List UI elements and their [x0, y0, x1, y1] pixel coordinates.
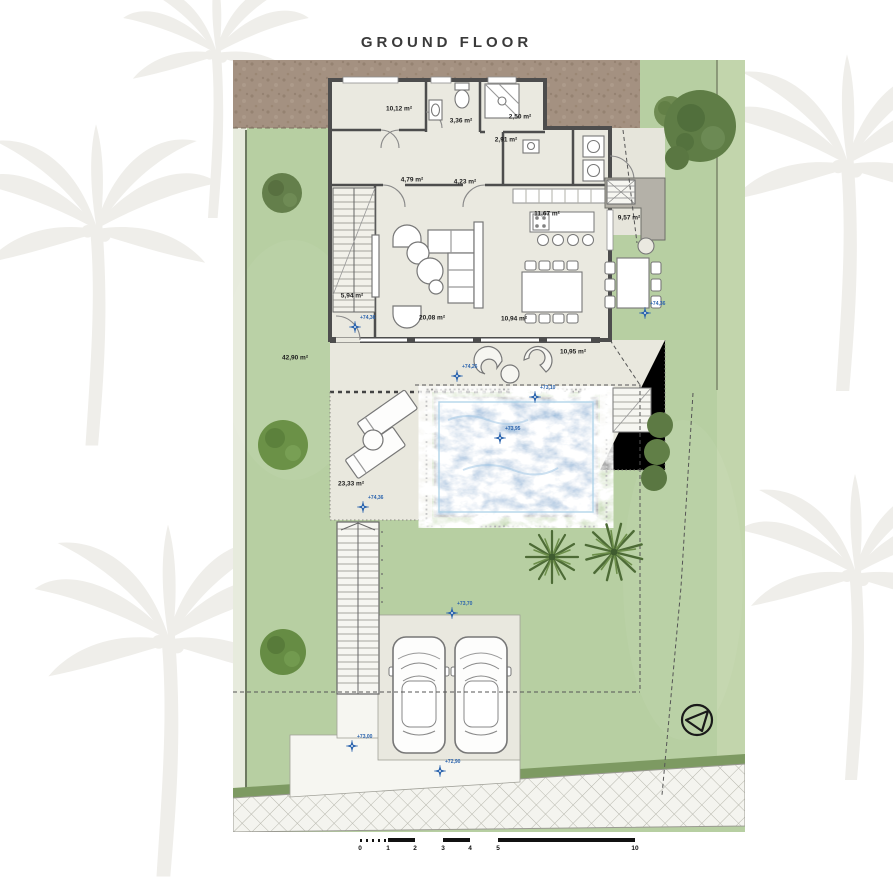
level-point-icon	[639, 307, 651, 319]
level-point-icon	[434, 765, 446, 777]
level-point-icon	[446, 607, 458, 619]
scale-tick-label: 0	[358, 845, 362, 852]
level-marker: +73,10	[529, 390, 541, 402]
tree	[258, 420, 308, 470]
scale-bar-segment	[498, 838, 635, 842]
scale-tick-label: 3	[441, 845, 445, 852]
level-marker: +72,90	[434, 764, 446, 776]
scale-tick-label: 1	[386, 845, 390, 852]
scale-tick-label: 10	[631, 845, 638, 852]
room-area-label: 10,94 m²	[501, 316, 527, 323]
level-marker: +74,36	[639, 306, 651, 318]
level-marker: +74,26	[451, 369, 463, 381]
floor-plan-page: GROUND FLOOR	[0, 0, 893, 896]
room-area-label: 4,79 m²	[401, 177, 423, 184]
tree	[260, 629, 306, 675]
scale-bar-dotted-segment	[360, 839, 388, 842]
room-area-label: 2,50 m²	[509, 114, 531, 121]
car-right	[451, 637, 511, 753]
level-point-icon	[494, 432, 506, 444]
level-marker: +73,00	[346, 739, 358, 751]
scale-tick-label: 4	[468, 845, 472, 852]
room-area-label: 10,12 m²	[386, 106, 412, 113]
car-left	[389, 637, 449, 753]
room-area-label: 42,90 m²	[282, 355, 308, 362]
page-title: GROUND FLOOR	[0, 34, 893, 51]
level-marker: +73,70	[446, 606, 458, 618]
level-point-icon	[451, 370, 463, 382]
room-area-label: 9,57 m²	[618, 215, 640, 222]
room-area-label: 3,36 m²	[450, 118, 472, 125]
level-point-icon	[357, 501, 369, 513]
scale-bar-segment	[443, 838, 470, 842]
room-area-label: 10,95 m²	[560, 349, 586, 356]
room-area-label: 4,23 m²	[454, 179, 476, 186]
swimming-pool	[427, 390, 607, 527]
level-marker: +73,95	[494, 431, 506, 443]
room-area-label: 2,91 m²	[495, 137, 517, 144]
level-point-icon	[349, 321, 361, 333]
level-marker: +74,36	[357, 500, 369, 512]
garden-stairs	[337, 522, 383, 694]
level-point-icon	[346, 740, 358, 752]
floor-plan-drawing	[233, 60, 745, 832]
pool-side-steps	[613, 388, 651, 432]
glass-sliding-doors	[330, 337, 600, 343]
room-area-label: 11,67 m²	[534, 211, 560, 218]
level-point-icon	[529, 391, 541, 403]
scale-tick-label: 2	[413, 845, 417, 852]
room-area-label: 23,33 m²	[338, 481, 364, 488]
room-area-label: 20,08 m²	[419, 315, 445, 322]
scale-bar-segment	[388, 838, 415, 842]
level-marker: +74,36	[349, 320, 361, 332]
tree	[262, 173, 302, 213]
room-area-label: 5,94 m²	[341, 293, 363, 300]
scale-bar: 01234510	[360, 836, 636, 856]
scale-tick-label: 5	[496, 845, 500, 852]
tree	[665, 146, 689, 170]
site-plan: 10,12 m² 3,36 m² 2,50 m² 2,91 m² 4,79 m²…	[233, 60, 745, 832]
